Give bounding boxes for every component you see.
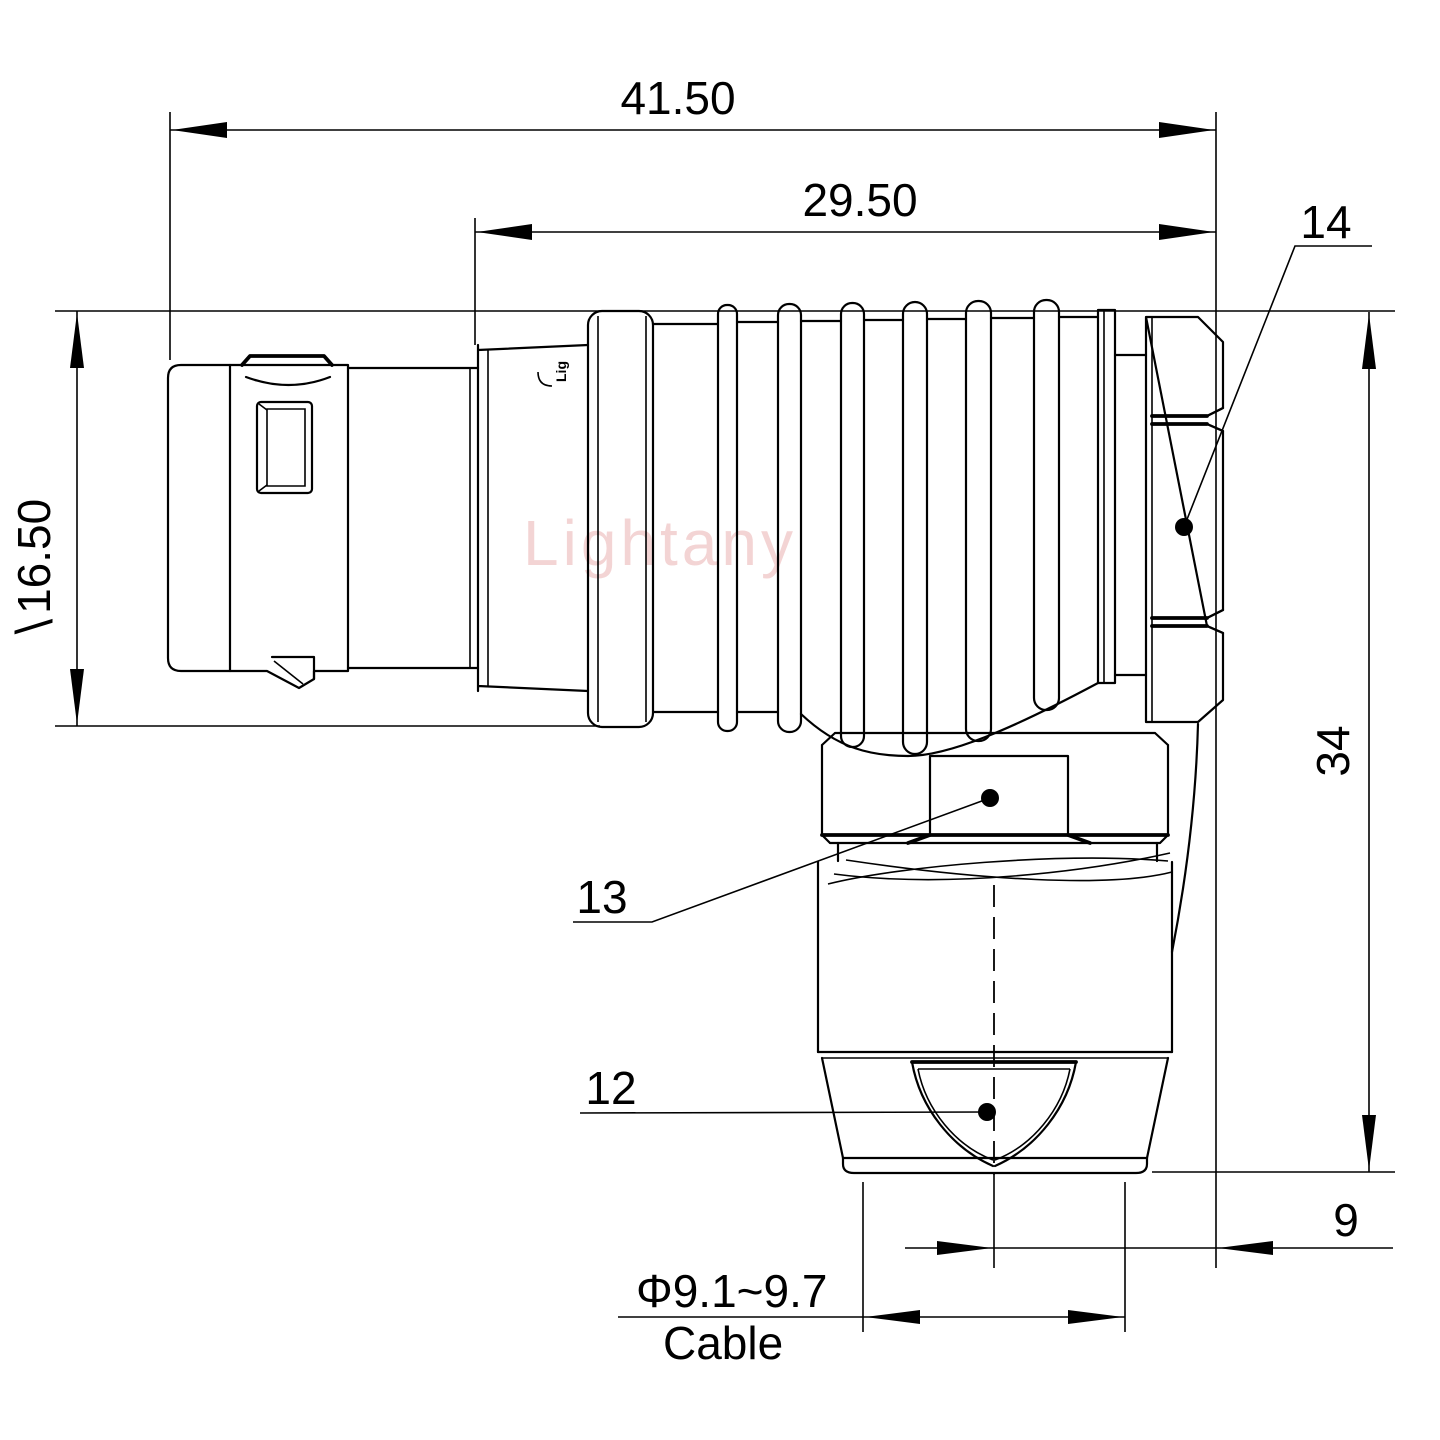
boot-elbow-curve bbox=[801, 683, 1098, 756]
callout-coupling-nut: 14 bbox=[1175, 196, 1372, 536]
dim-body-diameter-label: ∖16.50 bbox=[8, 499, 60, 643]
back-nut bbox=[822, 733, 1168, 843]
cable-label: Cable bbox=[663, 1317, 783, 1369]
connector-side-view: Lig bbox=[168, 300, 1223, 1175]
dim-axis-offset: 9 bbox=[905, 1194, 1393, 1255]
dim-plug-length: 29.50 bbox=[475, 174, 1216, 240]
dim-axis-offset-label: 9 bbox=[1333, 1194, 1359, 1246]
dim-plug-length-label: 29.50 bbox=[802, 174, 917, 226]
callout-cable-bush-label: 12 bbox=[585, 1062, 636, 1114]
callout-back-nut-label: 13 bbox=[576, 871, 627, 923]
boot-end-cap bbox=[1098, 310, 1146, 683]
callout-back-nut: 13 bbox=[573, 789, 999, 923]
dim-overall-height-label: 34 bbox=[1307, 725, 1359, 776]
rear-shell-window bbox=[257, 402, 312, 493]
back-nut-flat-face bbox=[930, 756, 1068, 835]
dim-overall-height: 34 bbox=[1307, 312, 1376, 1172]
dim-total-length-label: 41.50 bbox=[620, 72, 735, 124]
dim-cable-diameter: Φ9.1~9.7 Cable bbox=[618, 1265, 1125, 1369]
lower-barrel bbox=[818, 862, 1172, 1058]
callout-coupling-nut-label: 14 bbox=[1300, 196, 1351, 248]
callout-cable-bush: 12 bbox=[580, 1062, 996, 1121]
part-marking-text: Lig bbox=[553, 361, 569, 382]
technical-drawing-page: Lightany Lig bbox=[0, 0, 1440, 1440]
dim-body-diameter: ∖16.50 bbox=[8, 311, 84, 726]
neck-section bbox=[348, 368, 478, 668]
dim-total-length: 41.50 bbox=[170, 72, 1216, 138]
right-angle-connector-drawing: Lightany Lig bbox=[0, 0, 1440, 1440]
elbow-right-profile bbox=[1172, 724, 1198, 952]
dim-cable-diameter-label: Φ9.1~9.7 bbox=[636, 1265, 827, 1317]
watermark-text: Lightany bbox=[523, 507, 797, 579]
spin-ring bbox=[828, 843, 1172, 884]
rear-shell bbox=[168, 356, 348, 688]
rear-shell-top-tab bbox=[242, 356, 332, 365]
